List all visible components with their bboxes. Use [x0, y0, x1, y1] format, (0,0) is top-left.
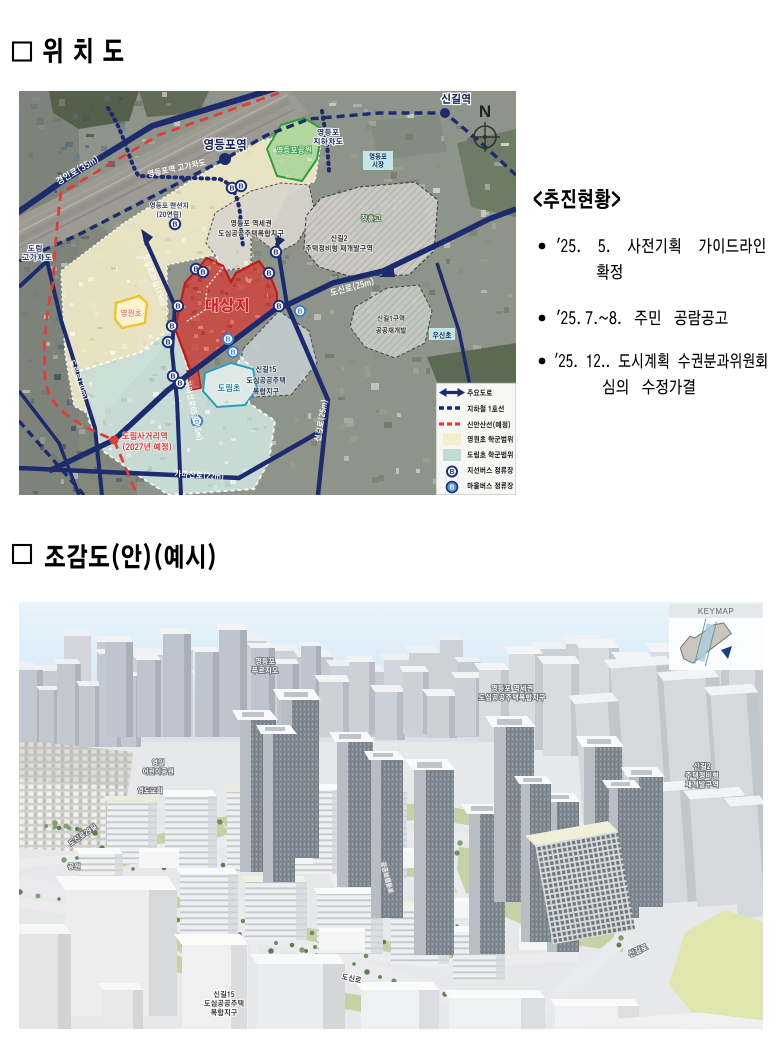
- svg-text:B: B: [238, 182, 243, 191]
- svg-text:B: B: [449, 485, 454, 492]
- svg-text:B: B: [230, 348, 235, 357]
- svg-text:B: B: [449, 469, 454, 476]
- svg-text:B: B: [297, 307, 302, 316]
- svg-text:B: B: [172, 220, 177, 229]
- svg-text:B: B: [225, 335, 230, 344]
- svg-text:B: B: [177, 379, 182, 388]
- svg-text:B: B: [229, 184, 234, 193]
- svg-text:B: B: [276, 302, 281, 311]
- svg-text:B: B: [165, 338, 170, 347]
- svg-text:B: B: [175, 302, 180, 311]
- svg-text:B: B: [273, 248, 278, 257]
- svg-text:B: B: [169, 322, 174, 331]
- svg-text:B: B: [266, 269, 271, 278]
- svg-text:KEYMAP: KEYMAP: [698, 607, 734, 616]
- svg-text:N: N: [479, 102, 491, 121]
- svg-text:B: B: [170, 372, 175, 381]
- svg-text:B: B: [200, 268, 205, 277]
